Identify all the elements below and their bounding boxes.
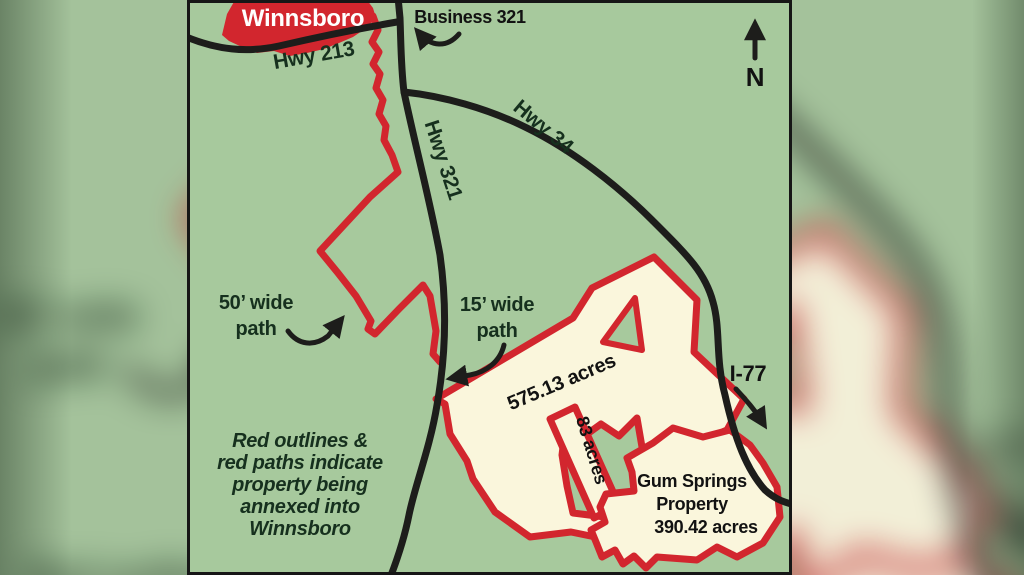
gum-springs-label-line1: Gum Springs bbox=[637, 471, 747, 491]
path-15-label-line2: path bbox=[476, 320, 517, 342]
legend-note-line2: red paths indicate bbox=[217, 452, 383, 474]
business-321-label: Business 321 bbox=[414, 7, 526, 27]
gum-springs-label-line2: Property bbox=[656, 494, 728, 514]
gum-springs-acreage-label: 390.42 acres bbox=[654, 517, 758, 537]
map-panel: Winnsboro Business 321 Hwy 213 Hwy 321 H… bbox=[187, 0, 792, 575]
svg-text:I-77: I-77 bbox=[968, 427, 1024, 474]
legend-note-line5: Winnsboro bbox=[249, 518, 351, 540]
map-svg: Winnsboro Business 321 Hwy 213 Hwy 321 H… bbox=[187, 0, 792, 575]
legend-note-line4: annexed into bbox=[240, 496, 360, 518]
town-label: Winnsboro bbox=[242, 5, 364, 32]
i77-label: I-77 bbox=[730, 361, 767, 386]
legend-note-line3: property being bbox=[231, 474, 368, 496]
svg-text:path: path bbox=[29, 345, 107, 387]
legend-note-line1: Red outlines & bbox=[232, 430, 368, 452]
path-50-label-line2: path bbox=[235, 318, 276, 340]
path-15-label-line1: 15’ wide bbox=[460, 294, 534, 316]
annexation-map-image: Winnsboro Business 321 Hwy 213 Hwy 321 H… bbox=[0, 0, 1024, 575]
svg-text:50’ wide: 50’ wide bbox=[0, 295, 139, 337]
path-50-label-line1: 50’ wide bbox=[219, 292, 293, 314]
north-label: N bbox=[746, 62, 764, 92]
